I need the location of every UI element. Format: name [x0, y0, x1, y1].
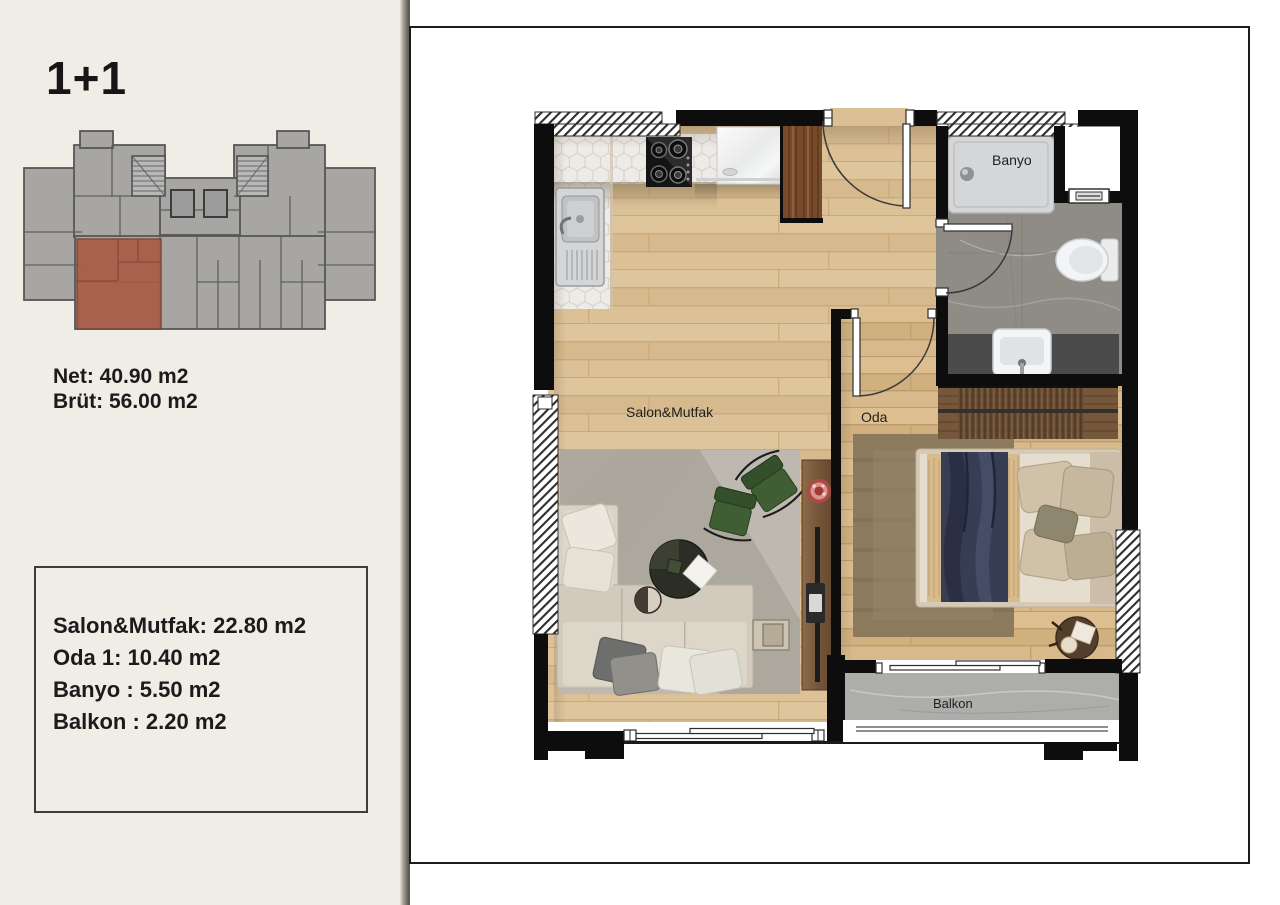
svg-text:Banyo: Banyo	[992, 152, 1032, 168]
svg-text:Oda: Oda	[861, 409, 888, 425]
svg-text:Balkon: Balkon	[933, 696, 973, 711]
svg-text:Salon&Mutfak: Salon&Mutfak	[626, 404, 714, 420]
